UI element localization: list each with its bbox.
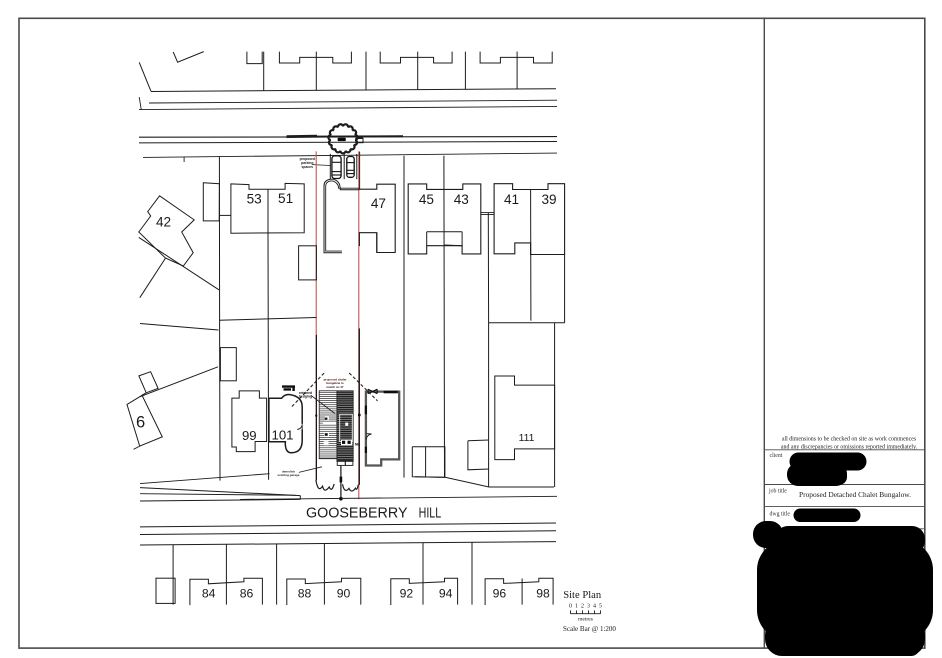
svg-text:6: 6 xyxy=(136,413,145,431)
svg-text:metres: metres xyxy=(578,616,593,622)
svg-text:client: client xyxy=(770,453,783,459)
svg-text:111: 111 xyxy=(519,433,535,444)
svg-text:2: 2 xyxy=(581,604,584,610)
svg-text:Scale Bar @ 1:200: Scale Bar @ 1:200 xyxy=(563,625,616,633)
svg-text:99: 99 xyxy=(242,428,257,443)
svg-text:96: 96 xyxy=(493,587,507,601)
svg-text:5: 5 xyxy=(599,604,602,610)
svg-text:90: 90 xyxy=(337,587,351,601)
svg-text:45: 45 xyxy=(419,192,434,207)
svg-text:98: 98 xyxy=(536,587,550,601)
svg-text:41: 41 xyxy=(504,192,519,207)
svg-text:4: 4 xyxy=(593,604,596,610)
svg-text:94: 94 xyxy=(439,587,453,601)
svg-text:0: 0 xyxy=(569,604,572,610)
svg-text:3: 3 xyxy=(587,604,590,610)
svg-text:spaces: spaces xyxy=(302,165,314,169)
svg-text:39: 39 xyxy=(541,192,556,207)
svg-text:existing garage: existing garage xyxy=(277,473,299,477)
svg-text:all dimensions to be checked o: all dimensions to be checked on site as … xyxy=(782,437,917,443)
svg-text:Proposed Detached Chalet Bunga: Proposed Detached Chalet Bungalow. xyxy=(799,490,911,499)
svg-text:1: 1 xyxy=(575,604,578,610)
svg-text:HILL: HILL xyxy=(419,506,442,522)
svg-text:and any discrepancies or omiss: and any discrepancies or omissions repor… xyxy=(781,444,918,450)
svg-text:match no 47: match no 47 xyxy=(326,385,344,389)
svg-text:Site Plan: Site Plan xyxy=(563,590,602,601)
svg-text:42: 42 xyxy=(156,215,171,230)
svg-text:101: 101 xyxy=(271,427,293,442)
svg-text:84: 84 xyxy=(202,587,216,601)
svg-text:86: 86 xyxy=(240,587,254,601)
svg-text:dwg title: dwg title xyxy=(770,512,791,518)
svg-text:51: 51 xyxy=(278,191,293,206)
svg-text:88: 88 xyxy=(298,587,312,601)
svg-text:92: 92 xyxy=(400,587,414,601)
svg-text:NB: NB xyxy=(355,442,360,446)
svg-text:47: 47 xyxy=(371,196,386,211)
svg-text:hedging: hedging xyxy=(299,394,312,398)
svg-text:43: 43 xyxy=(454,192,469,207)
svg-text:job title: job title xyxy=(768,489,787,495)
svg-text:GOOSEBERRY: GOOSEBERRY xyxy=(306,506,408,522)
svg-text:53: 53 xyxy=(247,191,262,206)
